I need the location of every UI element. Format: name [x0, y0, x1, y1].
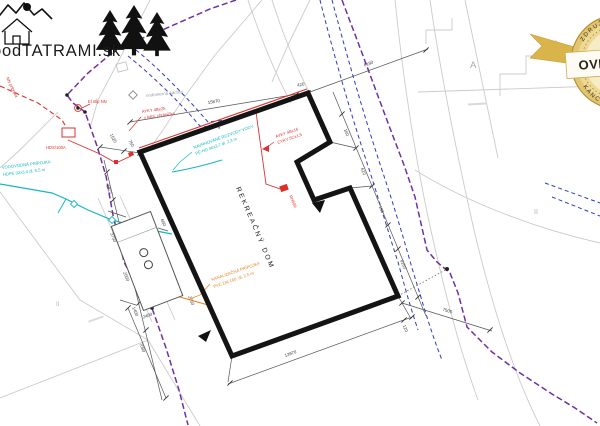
- site-plan-drawing: 15870 420 6180 1520 750 160 610 160 9160…: [0, 0, 600, 426]
- dimension-label: 7500: [442, 307, 453, 315]
- building-label: REKREAČNÝ DOM: [234, 185, 277, 270]
- parcel-label-ii-left: II: [56, 302, 60, 308]
- parcel-label-ii-right: II: [534, 209, 538, 216]
- dimension-label: 13970: [284, 349, 298, 358]
- illegible-parcel-text: [468, 103, 486, 106]
- entrance-triangle-icon: [198, 330, 211, 342]
- dimension-ticks: [97, 47, 492, 400]
- leader-arrow-icon: [262, 145, 269, 152]
- edge-cable-label: NN prípojka: [5, 76, 19, 99]
- dimension-label: 15870: [207, 98, 220, 105]
- parcel-lines: [0, 0, 600, 426]
- pine-tree-icon: [143, 12, 171, 56]
- service-box-label: HDS/100A: [46, 145, 66, 150]
- dimension-label: 7080: [138, 342, 146, 353]
- dimension-label: 610: [360, 167, 368, 176]
- water-meter-shaft-label: vodomerná šachta: [146, 89, 184, 98]
- electric-pole-label: El stĺp NN: [88, 99, 107, 104]
- dimension-label: 2400: [142, 311, 153, 319]
- cable-joint-icon: [114, 160, 118, 164]
- dimension-chains: [97, 47, 492, 400]
- dimension-label: 650: [160, 218, 168, 227]
- hds-box-icon: [62, 128, 75, 137]
- dimension-label: 160: [378, 205, 386, 214]
- rh-box-icon: [279, 184, 289, 192]
- switch-box-label: RH50A: [288, 194, 298, 209]
- water-meter-shaft-icon: [129, 91, 137, 99]
- small-shed-outline: [116, 62, 128, 72]
- site-plan-screenshot: 15870 420 6180 1520 750 160 610 160 9160…: [0, 0, 600, 426]
- dimension-label: 160: [343, 128, 351, 137]
- electric-lines: [0, 86, 307, 190]
- mountains-icon: [0, 3, 52, 20]
- illegible-parcel-text: [88, 315, 104, 322]
- dimension-label: 120: [402, 324, 410, 333]
- dimension-label: 420: [297, 81, 306, 87]
- dimension-label: 1520: [109, 133, 118, 144]
- parcel-label-a: A: [470, 60, 477, 71]
- house-icon: [2, 19, 32, 44]
- building-outline: [140, 93, 398, 356]
- verified-badge: ZDRUŽENIE KANCELÁRIÍ OVERENÉ: [530, 15, 600, 109]
- dimension-label: 1400: [131, 306, 140, 317]
- logo-text: podTATRAMI.sk: [0, 42, 121, 60]
- dimension-label: 750: [127, 139, 135, 148]
- logo: podTATRAMI.sk: [0, 3, 171, 60]
